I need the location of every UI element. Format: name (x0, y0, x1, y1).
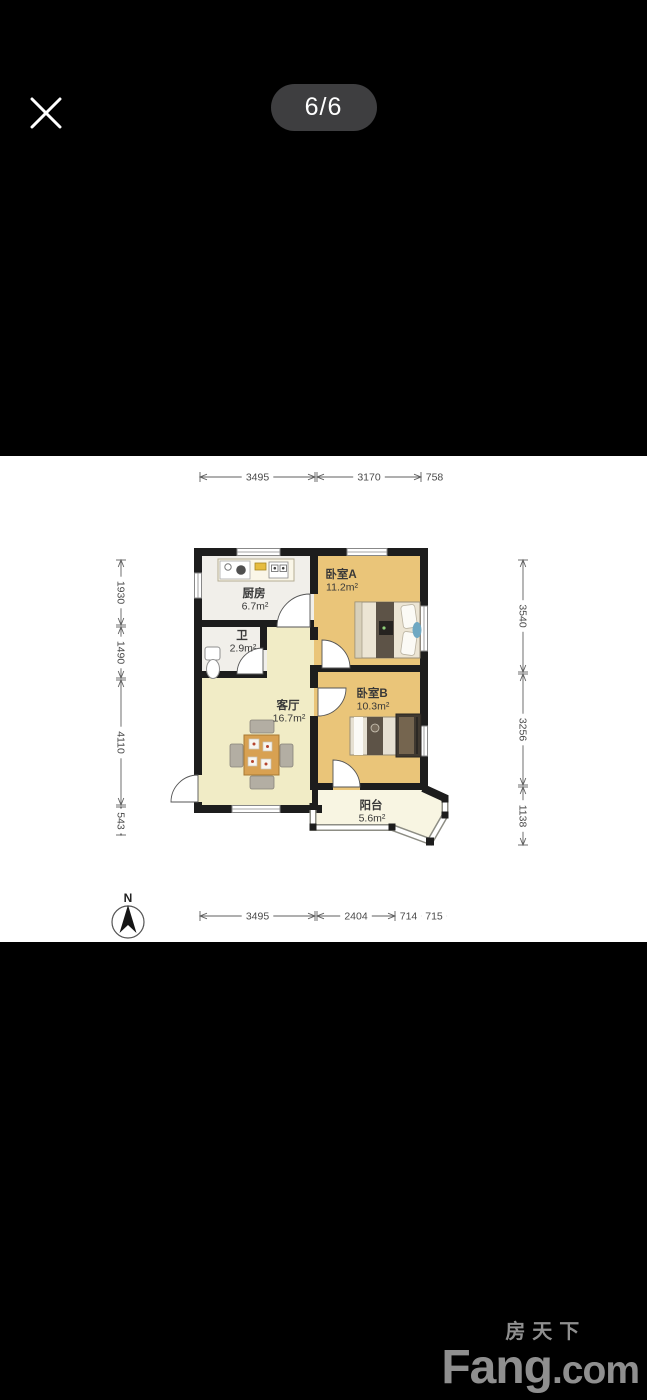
room-label-balcony: 阳台5.6m² (359, 798, 386, 825)
dimension-value: 1490 (114, 641, 126, 665)
image-counter-pill: 6/6 (271, 84, 377, 131)
dimension-value: 1930 (114, 581, 126, 605)
bedroomA-right-window (421, 606, 428, 651)
watermark-logo: Fang.com (441, 1344, 639, 1392)
room-label-kitchen: 厨房6.7m² (242, 586, 269, 613)
room-area: 11.2m² (326, 582, 358, 594)
room-area: 5.6m² (359, 813, 386, 825)
dimension: 543 (114, 807, 127, 835)
close-button[interactable] (28, 95, 64, 131)
dimension: 1138 (516, 787, 529, 845)
dimension-value: 715 (425, 911, 443, 923)
dimension-value: 4110 (114, 731, 126, 754)
tv-panel (379, 621, 393, 635)
bedroomB-wardrobe (396, 714, 421, 757)
dimension: 714 (396, 910, 421, 923)
compass-north-label: N (124, 891, 133, 905)
room-area: 2.9m² (230, 643, 257, 655)
dimension-value: 2404 (344, 911, 368, 923)
room-area: 6.7m² (242, 601, 269, 613)
bedroomB-bed (350, 717, 396, 755)
dimension: 3495 (200, 910, 315, 923)
room-area: 10.3m² (357, 701, 390, 713)
watermark-chinese: 房天下 (505, 1322, 639, 1342)
room-name: 卧室A (325, 567, 356, 581)
bedroomA-top-window (347, 549, 387, 556)
room-name: 客厅 (276, 698, 300, 712)
close-icon (28, 95, 64, 131)
dimension: 3495 (200, 471, 315, 484)
dimension: 715 (421, 910, 446, 923)
dimension: 1490 (114, 627, 127, 678)
dimension: 3540 (516, 560, 529, 672)
room-area: 16.7m² (273, 713, 306, 725)
fang-watermark: 房天下 Fang.com (441, 1322, 639, 1392)
dimension: 3170 (317, 471, 421, 484)
entry-door (171, 775, 198, 802)
dimension-value: 3540 (516, 604, 528, 628)
room-name: 卫 (236, 629, 248, 642)
dish (255, 563, 266, 570)
bedroomB-right-window (421, 726, 428, 756)
room-label-bedroomB: 卧室B10.3m² (356, 686, 389, 713)
room-name: 阳台 (360, 798, 383, 812)
floorplan-drawing: 3495317075834952404714715193014904110543… (0, 456, 647, 942)
living-bottom-window (232, 806, 280, 813)
kitchen-left-window (195, 573, 202, 598)
dimension-value: 543 (114, 812, 126, 830)
dimension: 4110 (114, 680, 127, 805)
dimension: 2404 (317, 910, 395, 923)
dimension-value: 3170 (357, 472, 381, 484)
dimension-value: 3495 (246, 472, 270, 484)
kitchen-counter (218, 559, 294, 581)
dimension: 758 (422, 471, 447, 484)
floorplan-photo[interactable]: 3495317075834952404714715193014904110543… (0, 456, 647, 942)
dimension-value: 3495 (246, 911, 270, 923)
bedroomA-bed (355, 602, 422, 658)
room-name: 厨房 (243, 586, 266, 600)
dimension: 3256 (516, 674, 529, 785)
room-label-bedroomA: 卧室A11.2m² (325, 567, 358, 594)
kitchen-top-window (237, 549, 280, 556)
dimension-value: 758 (426, 472, 444, 484)
dimension-value: 1138 (516, 805, 528, 828)
room-name: 卧室B (356, 686, 387, 700)
dimension: 1930 (114, 560, 127, 625)
compass (112, 905, 144, 938)
dimension-value: 3256 (516, 718, 528, 742)
bed-runner (413, 622, 422, 638)
dimension-value: 714 (400, 911, 418, 923)
image-counter: 6/6 (305, 93, 343, 122)
image-viewer: 6/6 (0, 0, 647, 1400)
